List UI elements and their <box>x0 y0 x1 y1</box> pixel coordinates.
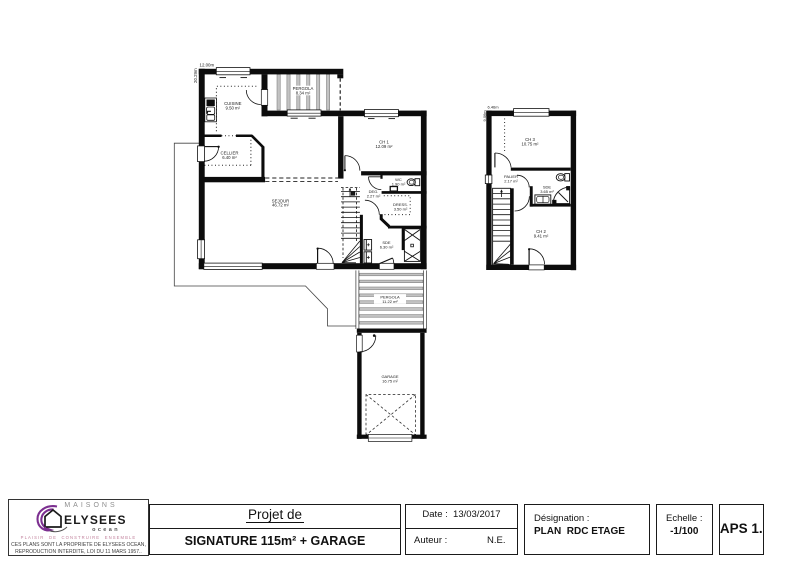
svg-text:20.29m: 20.29m <box>193 68 198 83</box>
svg-text:46.72 m²: 46.72 m² <box>272 203 290 208</box>
svg-text:12.00m: 12.00m <box>200 63 215 68</box>
svg-text:9.06m: 9.06m <box>482 110 487 122</box>
svg-text:12.09 m²: 12.09 m² <box>376 144 394 149</box>
svg-text:9.50 m²: 9.50 m² <box>226 105 241 110</box>
svg-text:6.46m: 6.46m <box>488 105 500 110</box>
svg-text:3.65 m²: 3.65 m² <box>540 189 554 194</box>
svg-text:16.75 m²: 16.75 m² <box>382 378 398 383</box>
svg-text:6.40 m²: 6.40 m² <box>222 155 237 160</box>
svg-text:2.17 m²: 2.17 m² <box>504 179 518 184</box>
svg-text:2.27 m²: 2.27 m² <box>367 193 381 198</box>
svg-text:8.34 m²: 8.34 m² <box>296 91 311 96</box>
svg-text:9.41 m²: 9.41 m² <box>534 233 549 238</box>
svg-text:11.22 m²: 11.22 m² <box>382 299 398 304</box>
svg-text:10.75 m²: 10.75 m² <box>522 141 540 146</box>
svg-text:1.90 m²: 1.90 m² <box>392 181 406 186</box>
svg-text:3.50 m²: 3.50 m² <box>394 207 408 212</box>
svg-text:6.30 m²: 6.30 m² <box>380 244 394 249</box>
